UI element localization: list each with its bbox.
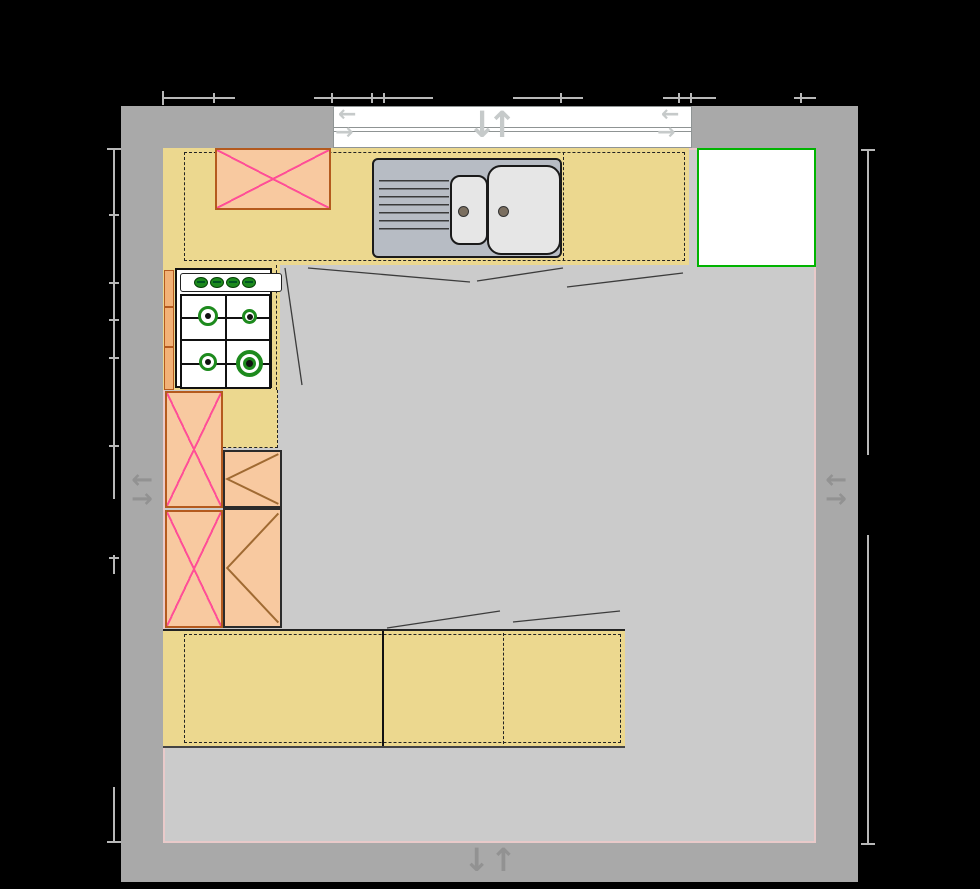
- arrow-right-icon: →: [121, 490, 163, 509]
- window-arrow-right-icon: →: [335, 124, 353, 142]
- dimension-top-segment: [663, 97, 716, 99]
- sink-double-bowl[interactable]: [372, 158, 562, 258]
- dimension-right-segment: [867, 535, 869, 845]
- filler-panel: [164, 347, 174, 390]
- worktop-joint-dash: [563, 152, 564, 261]
- gas-hob[interactable]: [175, 268, 272, 388]
- tall-cabinet-x-2[interactable]: [165, 510, 223, 628]
- floor-plan-canvas: ← → ↓ ↑ ← →: [0, 0, 980, 889]
- window-arrow-up-icon: ↑: [487, 106, 517, 146]
- hob-panel-front: [180, 339, 271, 389]
- tall-cabinet-x-1[interactable]: [165, 391, 223, 508]
- dimension-left-segment: [113, 555, 115, 574]
- wall-cabinet-x[interactable]: [215, 148, 331, 210]
- wok-burner-icon: [236, 350, 263, 377]
- filler-panel: [164, 307, 174, 347]
- hob-knob-strip: [180, 273, 282, 292]
- hob-panel-rear: [180, 294, 271, 341]
- opening-arrows-right-wall: ← →: [815, 471, 857, 509]
- fridge[interactable]: [697, 148, 816, 267]
- filler-panel: [164, 270, 174, 307]
- arrow-down-icon: ↓: [463, 841, 490, 879]
- hob-knob-icon: [242, 277, 256, 288]
- burner-icon: [242, 309, 257, 324]
- dimension-top-segment: [794, 97, 816, 99]
- arrow-right-icon: →: [815, 490, 857, 509]
- burner-icon: [199, 353, 217, 371]
- arrow-up-icon: ↑: [490, 841, 517, 879]
- worktop-bottom[interactable]: [163, 629, 625, 748]
- dimension-right-segment: [867, 150, 869, 455]
- window[interactable]: ← → ↓ ↑ ← →: [333, 106, 692, 148]
- opening-arrows-bottom-wall: ↓↑: [462, 842, 518, 878]
- dimension-top-segment: [163, 97, 235, 99]
- worktop-joint-dash: [503, 633, 504, 744]
- hob-knob-icon: [226, 277, 240, 288]
- window-arrow-right-icon: →: [657, 124, 675, 142]
- sink-drainer: [379, 180, 449, 236]
- worktop-edge-dashes: [184, 634, 621, 743]
- dimension-top-segment: [513, 97, 583, 99]
- hob-knob-icon: [194, 277, 208, 288]
- worktop-hob-return[interactable]: [223, 390, 278, 448]
- dimension-left-segment: [113, 787, 115, 843]
- dimension-top-segment: [314, 97, 433, 99]
- dimension-left-segment: [113, 149, 115, 499]
- worktop-divider: [382, 631, 384, 746]
- opening-arrows-left-wall: ← →: [121, 471, 163, 509]
- faucet-hole-icon: [458, 206, 469, 217]
- door-swing-icon: [225, 452, 280, 506]
- door-swing-icon: [225, 510, 280, 626]
- base-cabinet-door-2[interactable]: [223, 508, 282, 628]
- base-cabinet-door-1[interactable]: [223, 450, 282, 508]
- faucet-hole-icon: [498, 206, 509, 217]
- hob-knob-icon: [210, 277, 224, 288]
- sink-bowl-small: [450, 175, 488, 245]
- burner-icon: [198, 306, 218, 326]
